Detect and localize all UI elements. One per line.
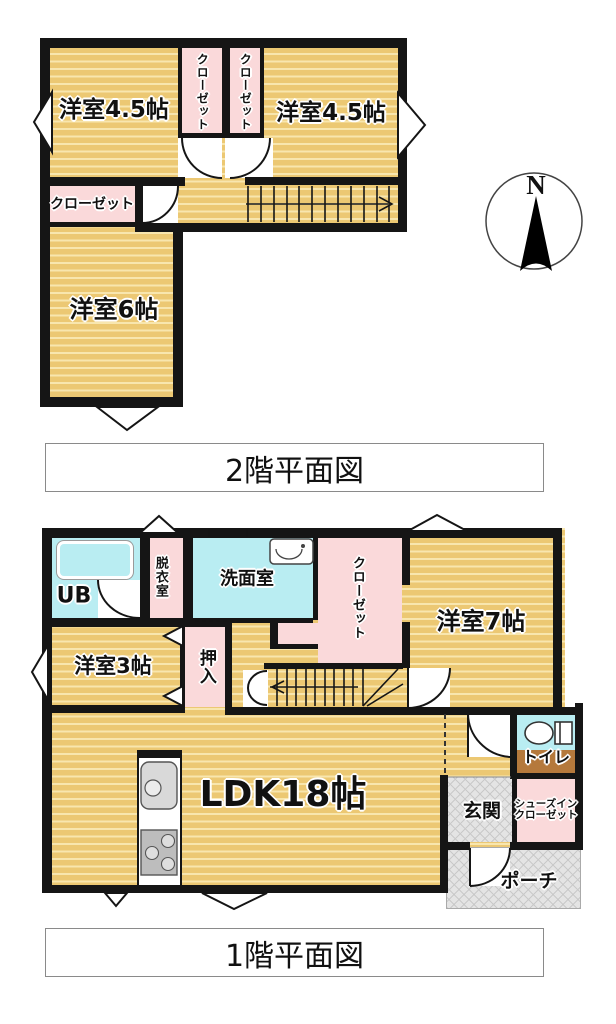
room-label-oshiire: 押入: [196, 649, 214, 685]
wall: [42, 528, 562, 538]
floor2-door-swing-right: [225, 138, 273, 178]
wall: [183, 528, 193, 618]
room-label-dressing: 脱衣室: [153, 556, 167, 598]
wall: [553, 528, 562, 712]
wall: [225, 623, 232, 707]
wall: [445, 842, 470, 850]
room-label-2f-closet-right: クローゼット: [239, 53, 252, 131]
floor1-toilet-room: [515, 713, 575, 750]
wall: [135, 223, 407, 232]
compass-north-label: N: [526, 171, 546, 199]
wall: [135, 186, 142, 223]
wall: [42, 705, 185, 713]
wall: [42, 885, 448, 893]
room-label-2f-closet-lower: クローゼット: [50, 198, 134, 213]
floor2-caption: 2階平面図: [225, 446, 364, 490]
room-label-2f-bedroom-left: 洋室4.5帖: [59, 98, 169, 122]
wall: [40, 222, 135, 227]
floor1-caption-box: 1階平面図: [45, 928, 544, 977]
wall: [575, 703, 583, 850]
wall: [398, 38, 407, 232]
bedroom7-door-swing: [408, 668, 450, 708]
room-label-2f-bedroom-right: 洋室4.5帖: [276, 101, 386, 125]
shoe-closet-line2: クローゼット: [515, 810, 578, 821]
wall: [510, 713, 517, 775]
wall: [440, 775, 448, 893]
wall: [180, 623, 185, 707]
room-label-bedroom7: 洋室7帖: [437, 609, 526, 634]
wall: [313, 538, 318, 620]
wall: [225, 707, 583, 715]
wall: [402, 528, 410, 585]
wall: [178, 48, 182, 133]
wall: [245, 177, 407, 185]
wall: [40, 38, 407, 48]
wall: [137, 750, 182, 758]
room-label-2f-bedroom6: 洋室6帖: [70, 297, 159, 322]
wall: [264, 663, 403, 669]
room-label-1f-closet: クローゼット: [350, 556, 364, 640]
room-label-porch: ポーチ: [500, 872, 557, 892]
wall: [40, 177, 185, 186]
room-label-washroom: 洗面室: [220, 571, 274, 590]
wall: [260, 48, 264, 133]
room-label-shoe-closet: シューズイン クローゼット: [515, 799, 578, 821]
room-label-ldk: LDK18帖: [200, 776, 367, 814]
floor2-caption-box: 2階平面図: [45, 443, 544, 492]
ub-door-swing: [98, 580, 140, 618]
wall: [40, 397, 183, 407]
floor2-door-swing-left: [178, 138, 222, 178]
floor1-caption: 1階平面図: [225, 931, 364, 975]
stairs-double-door: [243, 670, 268, 707]
wall: [270, 644, 318, 649]
floor2-door-swing-hall: [142, 186, 178, 223]
wall: [402, 622, 410, 668]
floor1-closet-alcove: [278, 623, 318, 644]
room-label-bedroom3: 洋室3帖: [74, 655, 152, 677]
floorplan-page: 2階平面図 1階平面図: [0, 0, 616, 1024]
wall: [173, 223, 183, 407]
wall: [183, 618, 313, 623]
toilet-door-swing: [468, 713, 510, 757]
room-label-toilet: トイレ: [522, 750, 570, 767]
room-label-2f-closet-left: クローゼット: [196, 53, 209, 131]
wall: [510, 773, 583, 779]
kitchen-counter: [137, 758, 182, 885]
wall: [140, 538, 150, 618]
wall: [222, 48, 230, 138]
wall: [178, 133, 264, 138]
room-label-entrance: 玄関: [463, 802, 501, 822]
wall: [510, 842, 583, 850]
bathtub-icon: [57, 541, 133, 579]
room-label-ub: UB: [57, 584, 92, 607]
